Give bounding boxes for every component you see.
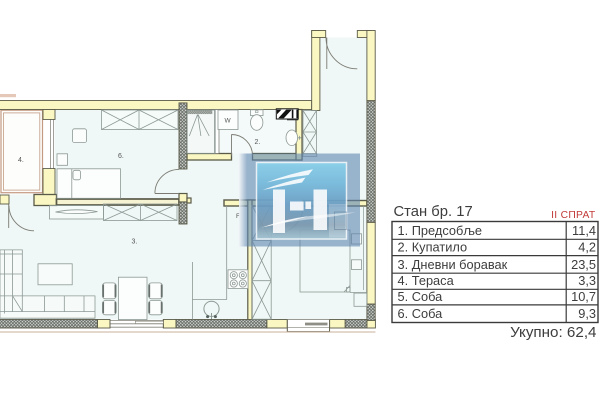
svg-text:4,2: 4,2 <box>578 240 596 255</box>
svg-text:6.: 6. <box>118 153 124 160</box>
svg-text:5. Соба: 5. Соба <box>398 289 444 304</box>
svg-text:6. Соба: 6. Соба <box>398 306 444 321</box>
svg-text:Укупно: 62,4: Укупно: 62,4 <box>510 324 596 341</box>
svg-text:2.: 2. <box>255 139 261 146</box>
svg-text:3. Дневни боравак: 3. Дневни боравак <box>398 257 508 272</box>
svg-text:23,5: 23,5 <box>571 257 596 272</box>
svg-text:11,4: 11,4 <box>572 223 596 238</box>
svg-text:10,7: 10,7 <box>571 289 596 304</box>
svg-text:2. Купатило: 2. Купатило <box>398 240 468 255</box>
svg-text:II СПРАТ: II СПРАТ <box>551 210 596 221</box>
svg-text:3,3: 3,3 <box>578 273 596 288</box>
svg-text:W: W <box>225 118 232 125</box>
svg-text:1. Предсобље: 1. Предсобље <box>398 223 483 238</box>
svg-text:3.: 3. <box>132 239 138 246</box>
svg-text:4. Тераса: 4. Тераса <box>398 273 455 288</box>
svg-text:4.: 4. <box>18 157 24 164</box>
svg-text:Стан бр. 17: Стан бр. 17 <box>394 204 473 220</box>
svg-text:9,3: 9,3 <box>578 306 596 321</box>
